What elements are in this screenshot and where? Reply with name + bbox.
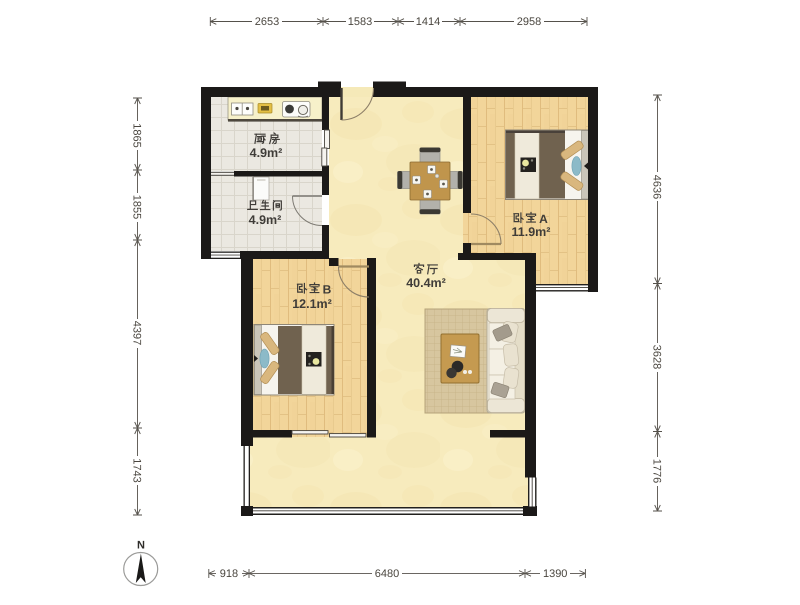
svg-text:6480: 6480 — [375, 568, 399, 580]
svg-text:1414: 1414 — [416, 16, 440, 28]
svg-text:1855: 1855 — [131, 195, 143, 219]
svg-text:1390: 1390 — [543, 568, 567, 580]
svg-text:N: N — [137, 540, 145, 552]
svg-text:4636: 4636 — [651, 175, 663, 199]
svg-text:1743: 1743 — [131, 458, 143, 482]
svg-text:11.9m²: 11.9m² — [512, 225, 551, 239]
svg-text:1583: 1583 — [348, 16, 372, 28]
svg-text:A: A — [539, 212, 548, 226]
svg-text:1865: 1865 — [131, 123, 143, 147]
svg-text:2653: 2653 — [255, 16, 279, 28]
svg-text:4.9m²: 4.9m² — [249, 213, 282, 227]
svg-text:4397: 4397 — [131, 321, 143, 345]
svg-text:2958: 2958 — [517, 16, 541, 28]
svg-text:12.1m²: 12.1m² — [292, 297, 332, 311]
svg-text:918: 918 — [220, 568, 238, 580]
svg-text:1776: 1776 — [651, 459, 663, 483]
svg-text:B: B — [323, 283, 332, 297]
svg-text:3628: 3628 — [651, 345, 663, 369]
svg-text:4.9m²: 4.9m² — [250, 146, 283, 160]
svg-text:40.4m²: 40.4m² — [406, 276, 446, 290]
